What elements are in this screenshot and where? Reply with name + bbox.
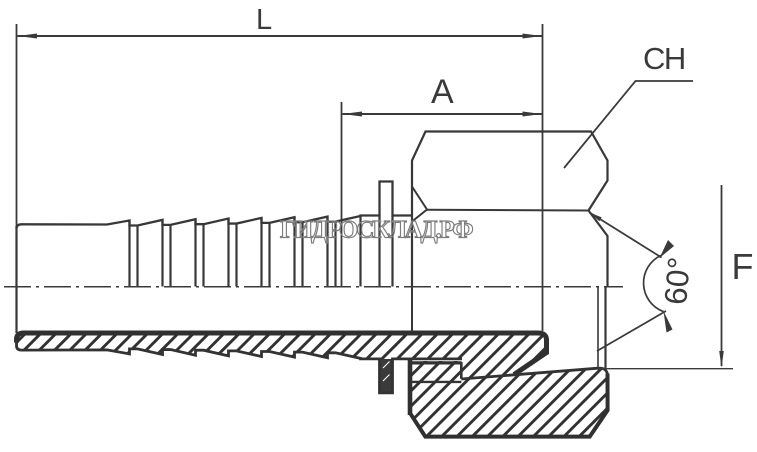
svg-text:CH: CH bbox=[643, 41, 685, 76]
svg-text:A: A bbox=[431, 73, 454, 111]
svg-text:ГИДРОСКЛАД.РФ: ГИДРОСКЛАД.РФ bbox=[280, 216, 473, 243]
svg-text:F: F bbox=[732, 246, 754, 287]
svg-text:60°: 60° bbox=[657, 256, 697, 307]
svg-text:L: L bbox=[256, 4, 272, 36]
